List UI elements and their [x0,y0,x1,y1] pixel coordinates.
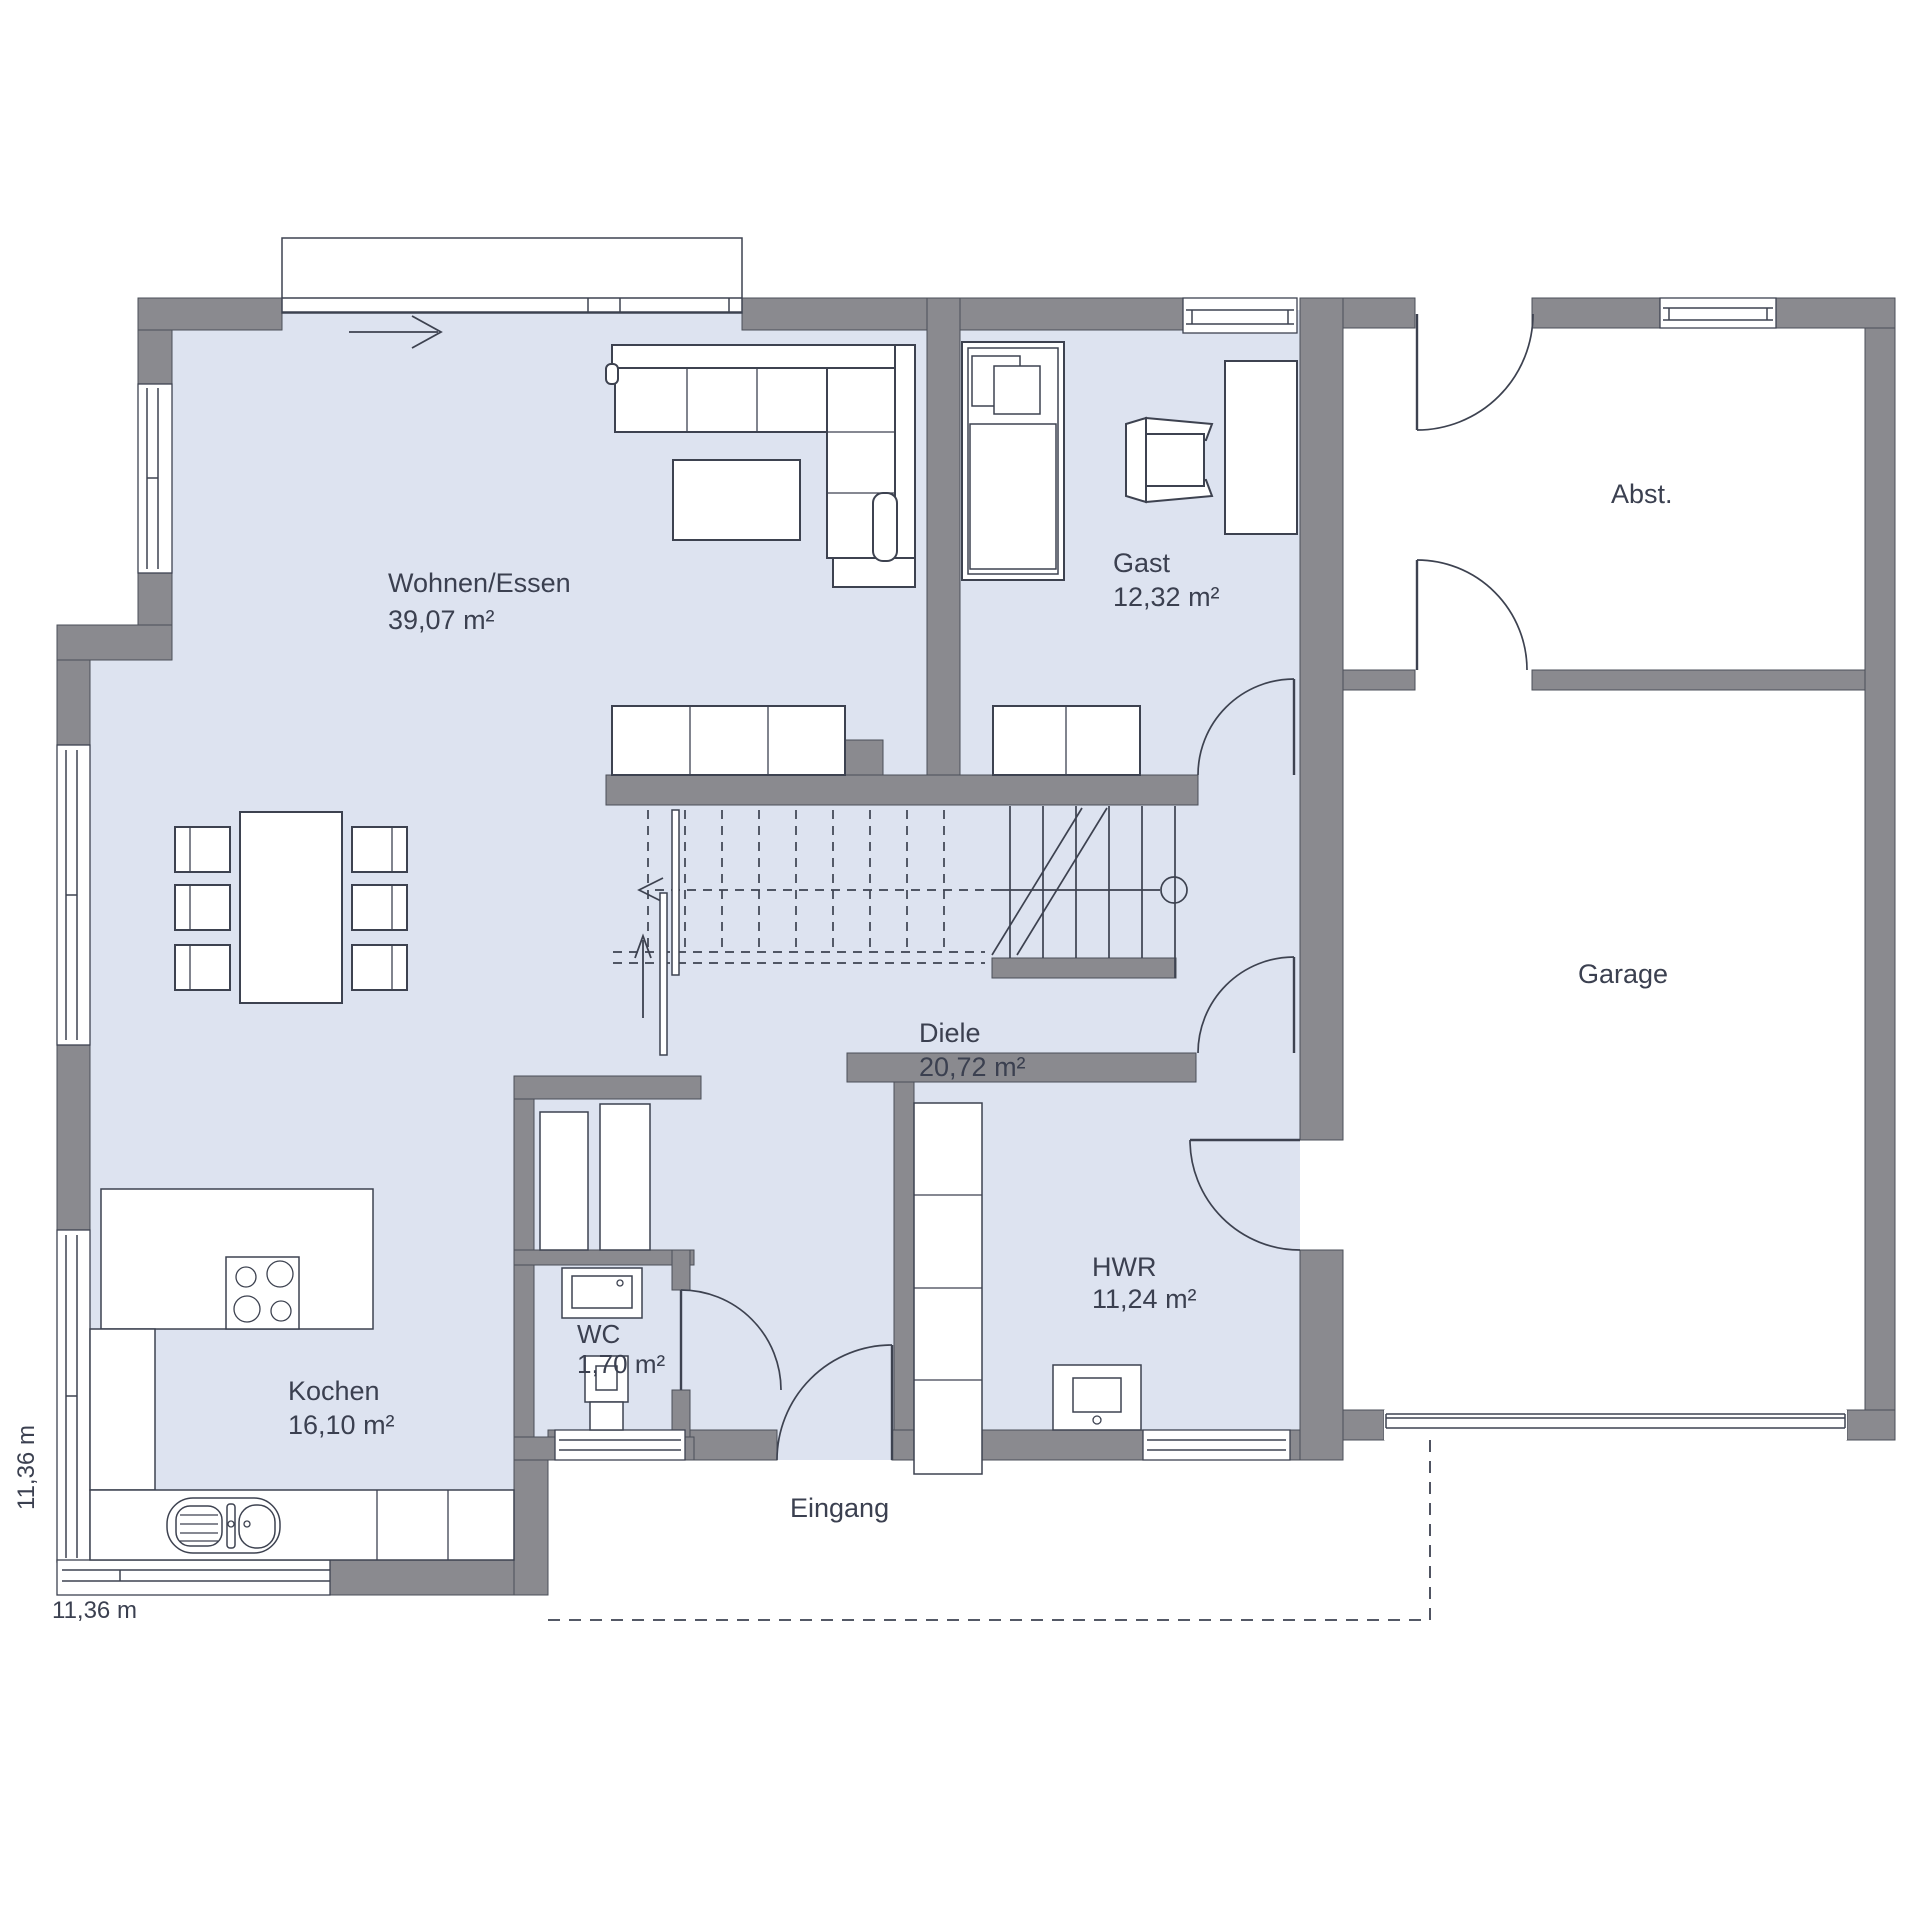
hwr-washer [1053,1365,1141,1430]
window-gast [1183,298,1297,333]
dimension-left: 11,36 m [13,1425,40,1510]
gast-bed [962,342,1064,580]
window-hwr-bottom [1143,1430,1290,1460]
sideboard-wohnen [612,706,845,775]
sideboard-gast [993,706,1140,775]
window-left-middle [57,745,90,1045]
garage-door [1384,1410,1847,1440]
roof-overhang-line [548,1440,1430,1620]
window-kitchen-bottom [57,1560,330,1595]
label-garage: Garage [1578,959,1668,989]
label-kochen: Kochen [288,1376,380,1406]
label-eingang: Eingang [790,1493,889,1523]
label-wc-area: 1,70 m² [577,1349,665,1379]
label-wc: WC [577,1319,620,1349]
label-diele-area: 20,72 m² [919,1052,1026,1082]
gast-desk [1225,361,1297,534]
door-abst-garage [1417,560,1527,670]
window-left-lower [57,1230,90,1562]
coffee-table [673,460,800,540]
label-abst: Abst. [1611,479,1673,509]
label-wohnen: Wohnen/Essen [388,568,571,598]
gast-armchair [1126,418,1212,502]
label-hwr: HWR [1092,1252,1156,1282]
kitchen-sink [167,1498,280,1553]
label-gast-area: 12,32 m² [1113,582,1220,612]
dining-table [240,812,342,1003]
floor-plan-page: Wohnen/Essen 39,07 m² Gast 12,32 m² Abst… [0,0,1920,1920]
label-hwr-area: 11,24 m² [1092,1284,1197,1314]
door-abst-exterior [1417,314,1533,430]
dimension-bottom: 11,36 m [52,1597,137,1624]
label-gast: Gast [1113,548,1171,578]
window-abst [1660,298,1776,328]
window-entrance-left [555,1430,685,1460]
sliding-window [282,238,742,313]
cooktop [226,1257,299,1329]
label-diele: Diele [919,1018,981,1048]
label-wohnen-area: 39,07 m² [388,605,495,635]
floor-plan-svg: Wohnen/Essen 39,07 m² Gast 12,32 m² Abst… [0,0,1920,1920]
window-left-upper [138,384,172,573]
label-kochen-area: 16,10 m² [288,1410,395,1440]
hwr-cabinets [914,1103,982,1474]
wc-sink [562,1268,642,1318]
